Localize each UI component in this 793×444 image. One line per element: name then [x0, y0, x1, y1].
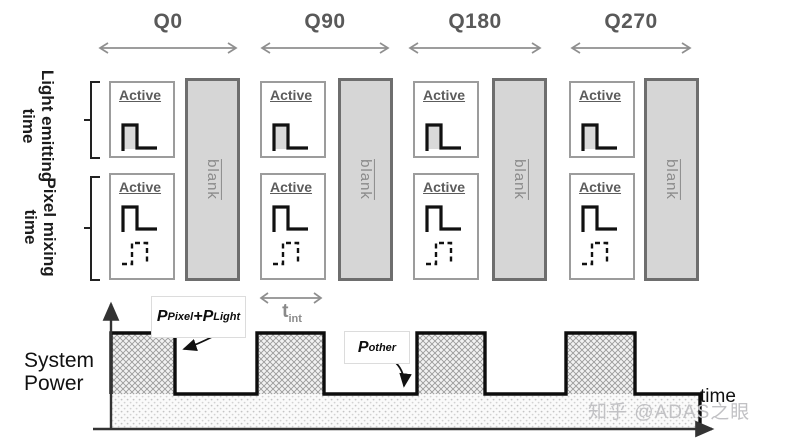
mixing-pulse-icon: [119, 201, 163, 235]
phase-title: Q180: [403, 10, 547, 34]
blank-bar: blank: [338, 78, 393, 281]
p-subscript: Light: [213, 311, 240, 323]
row-label-line: time: [21, 175, 40, 279]
p-symbol: P: [157, 308, 168, 326]
t-subscript: int: [288, 313, 301, 325]
active-box-pixel-mixing: Active: [109, 173, 175, 280]
phase-title: Q270: [565, 10, 697, 34]
phase-group-q180: Q180 Active Active blank: [403, 8, 547, 282]
phase-group-q90: Q90 Active Active blank: [255, 8, 395, 282]
light-pulse-icon: [579, 117, 623, 155]
blank-bar: blank: [185, 78, 240, 281]
active-box-pixel-mixing: Active: [569, 173, 635, 280]
p-symbol: P: [203, 308, 214, 326]
blank-label: blank: [511, 159, 528, 200]
active-label: Active: [270, 179, 324, 195]
y-axis-label-system-power: System Power: [24, 349, 94, 395]
p-subscript: Pixel: [168, 311, 194, 323]
light-pulse-icon: [270, 117, 314, 155]
phase-title: Q90: [255, 10, 395, 34]
active-label: Active: [423, 87, 477, 103]
active-label: Active: [119, 87, 173, 103]
row-label-line: Light emitting: [38, 66, 57, 186]
power-pulse-fill: [112, 333, 175, 394]
active-box-light-emitting: Active: [109, 81, 175, 158]
phase-span-arrow: [255, 39, 395, 57]
watermark-zhihu-adas: 知乎 @ADAS之眼: [588, 397, 750, 424]
t-int-label: tint: [262, 301, 322, 325]
blank-bar: blank: [644, 78, 699, 281]
active-label: Active: [423, 179, 477, 195]
plus-sign: +: [193, 308, 202, 326]
power-pulse-fill: [257, 333, 324, 394]
p-subscript: other: [369, 342, 397, 354]
mixing-pulse-icon: [423, 201, 467, 235]
row-label-line: time: [19, 66, 38, 186]
phase-group-q270: Q270 Active Active blank: [565, 8, 697, 282]
p-symbol: P: [358, 339, 369, 357]
delayed-pulse-dashed-icon: [579, 237, 623, 267]
blank-label: blank: [204, 159, 221, 200]
phase-span-arrow: [403, 39, 547, 57]
phase-span-arrow: [565, 39, 697, 57]
phase-group-q0: Q0 Active Active blank: [93, 8, 243, 282]
active-label: Active: [579, 87, 633, 103]
row-label-light-emitting-time: Light emitting time: [19, 66, 57, 186]
delayed-pulse-dashed-icon: [119, 237, 163, 267]
p-other-label: Pother: [344, 331, 410, 364]
active-label: Active: [119, 179, 173, 195]
delayed-pulse-dashed-icon: [423, 237, 467, 267]
p-pixel-plus-p-light-label: PPixel+PLight: [151, 296, 246, 338]
active-box-pixel-mixing: Active: [413, 173, 479, 280]
blank-bar: blank: [492, 78, 547, 281]
blank-label: blank: [357, 159, 374, 200]
active-box-light-emitting: Active: [260, 81, 326, 158]
row-label-pixel-mixing-time: Pixel mixing time: [21, 175, 59, 279]
active-label: Active: [270, 87, 324, 103]
blank-label: blank: [663, 159, 680, 200]
light-pulse-icon: [119, 117, 163, 155]
phase-title: Q0: [93, 10, 243, 34]
row-label-line: Pixel mixing: [40, 175, 59, 279]
power-pulse-fill: [566, 333, 635, 394]
power-pulse-fill: [417, 333, 485, 394]
active-box-pixel-mixing: Active: [260, 173, 326, 280]
y-axis-label-line: Power: [24, 372, 94, 395]
tof-timing-diagram: Light emitting time Pixel mixing time Q0…: [0, 0, 793, 444]
phase-span-arrow: [93, 39, 243, 57]
active-box-light-emitting: Active: [569, 81, 635, 158]
active-label: Active: [579, 179, 633, 195]
delayed-pulse-dashed-icon: [270, 237, 314, 267]
y-axis-label-line: System: [24, 349, 94, 372]
active-box-light-emitting: Active: [413, 81, 479, 158]
p-other-pointer-arrow: [396, 363, 404, 386]
mixing-pulse-icon: [579, 201, 623, 235]
mixing-pulse-icon: [270, 201, 314, 235]
light-pulse-icon: [423, 117, 467, 155]
